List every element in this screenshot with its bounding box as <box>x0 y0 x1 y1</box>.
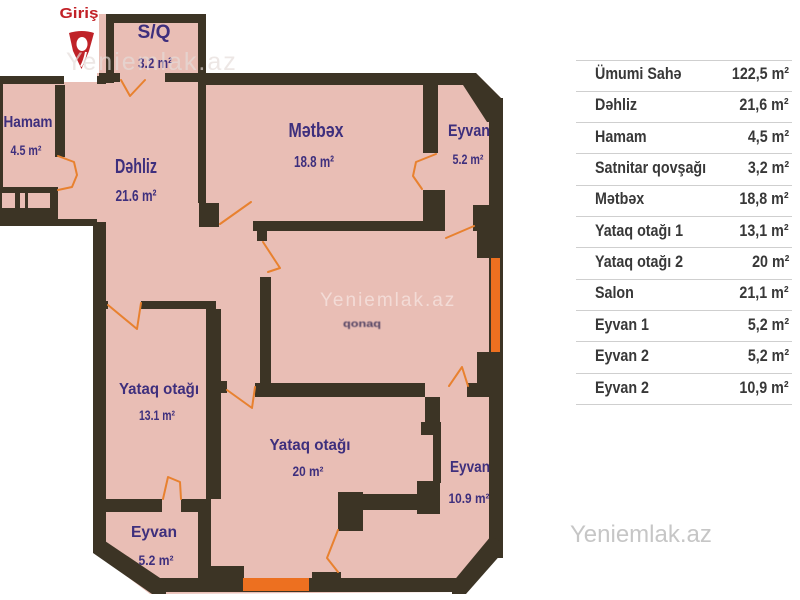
svg-text:qonaq: qonaq <box>343 319 381 330</box>
svg-text:13.1 m²: 13.1 m² <box>139 407 175 423</box>
svg-text:10.9 m²: 10.9 m² <box>449 490 490 506</box>
svg-text:21.6 m²: 21.6 m² <box>116 188 157 205</box>
svg-text:Mətbəx: Mətbəx <box>289 120 344 142</box>
svg-text:18.8 m²: 18.8 m² <box>294 154 334 171</box>
svg-text:Eyvan: Eyvan <box>450 459 490 476</box>
svg-text:Eyvan: Eyvan <box>448 121 490 140</box>
svg-text:20 m²: 20 m² <box>293 463 324 479</box>
svg-text:Dəhliz: Dəhliz <box>115 156 157 178</box>
svg-text:Yataq otağı: Yataq otağı <box>270 437 351 454</box>
svg-text:Eyvan: Eyvan <box>131 524 177 541</box>
svg-text:5.2 m²: 5.2 m² <box>453 151 484 167</box>
svg-text:5.2 m²: 5.2 m² <box>139 552 174 568</box>
svg-text:4.5 m²: 4.5 m² <box>11 142 42 158</box>
svg-text:Yataq otağı: Yataq otağı <box>119 381 199 398</box>
svg-text:Giriş: Giriş <box>60 5 99 22</box>
svg-text:Hamam: Hamam <box>4 114 53 131</box>
svg-text:S/Q: S/Q <box>138 22 171 43</box>
